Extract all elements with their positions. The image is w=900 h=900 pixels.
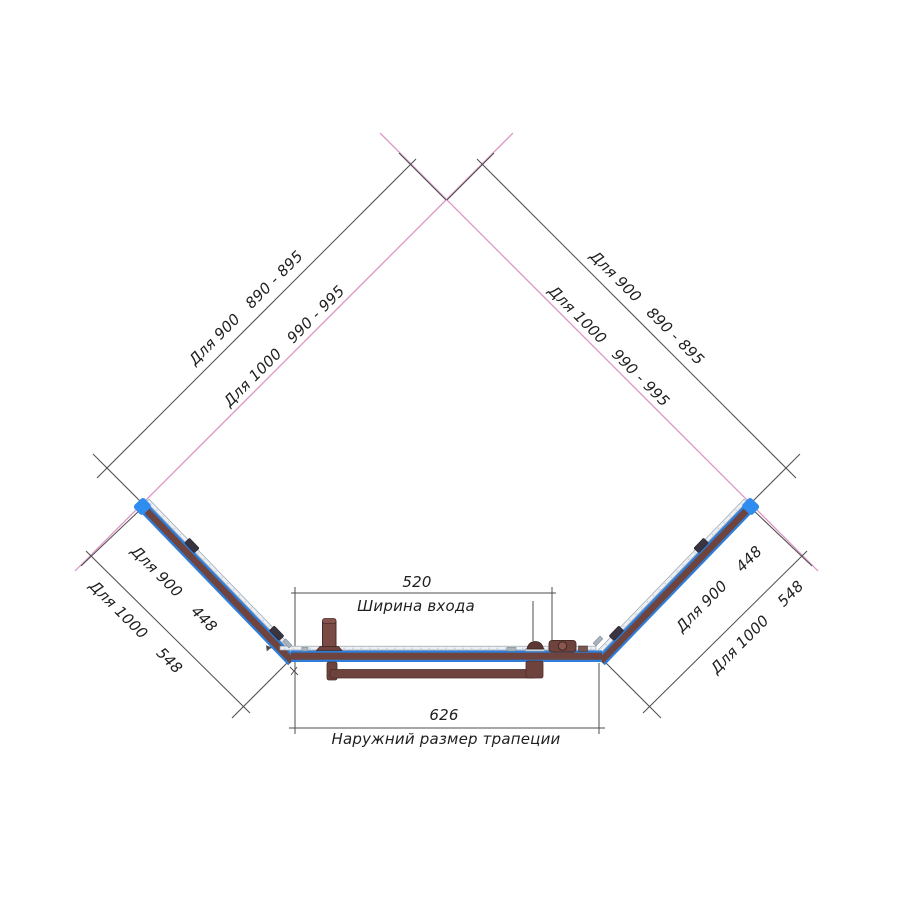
door-handle	[317, 619, 343, 651]
track-profile	[291, 653, 602, 660]
towel-rail	[327, 661, 543, 680]
roller-wheel	[558, 642, 566, 650]
shower-enclosure-dimension-drawing: Для 900 890 - 895 Для 1000 990 - 995 Для…	[0, 0, 900, 900]
guide-bit-left	[302, 647, 308, 651]
guide-bit-right	[579, 646, 588, 652]
handle-cylinder	[323, 622, 337, 647]
dimension-outer-value: 626	[429, 706, 458, 724]
handle-base	[317, 647, 343, 651]
drawing-canvas	[0, 0, 900, 900]
roller-block	[549, 641, 576, 653]
corner-bit-right	[593, 636, 603, 646]
dimension-entrance-label: Ширина входа	[357, 597, 475, 615]
door-stopper	[526, 642, 545, 652]
guide-bit-mid	[507, 647, 516, 651]
rail-elbow-right	[526, 661, 543, 678]
stopper-dome	[527, 642, 544, 650]
dimension-outer-label: Наружний размер трапеции	[332, 730, 561, 748]
dimension-entrance-value: 520	[402, 573, 431, 591]
handle-top-cap	[323, 619, 337, 624]
rail-bar	[330, 670, 536, 679]
